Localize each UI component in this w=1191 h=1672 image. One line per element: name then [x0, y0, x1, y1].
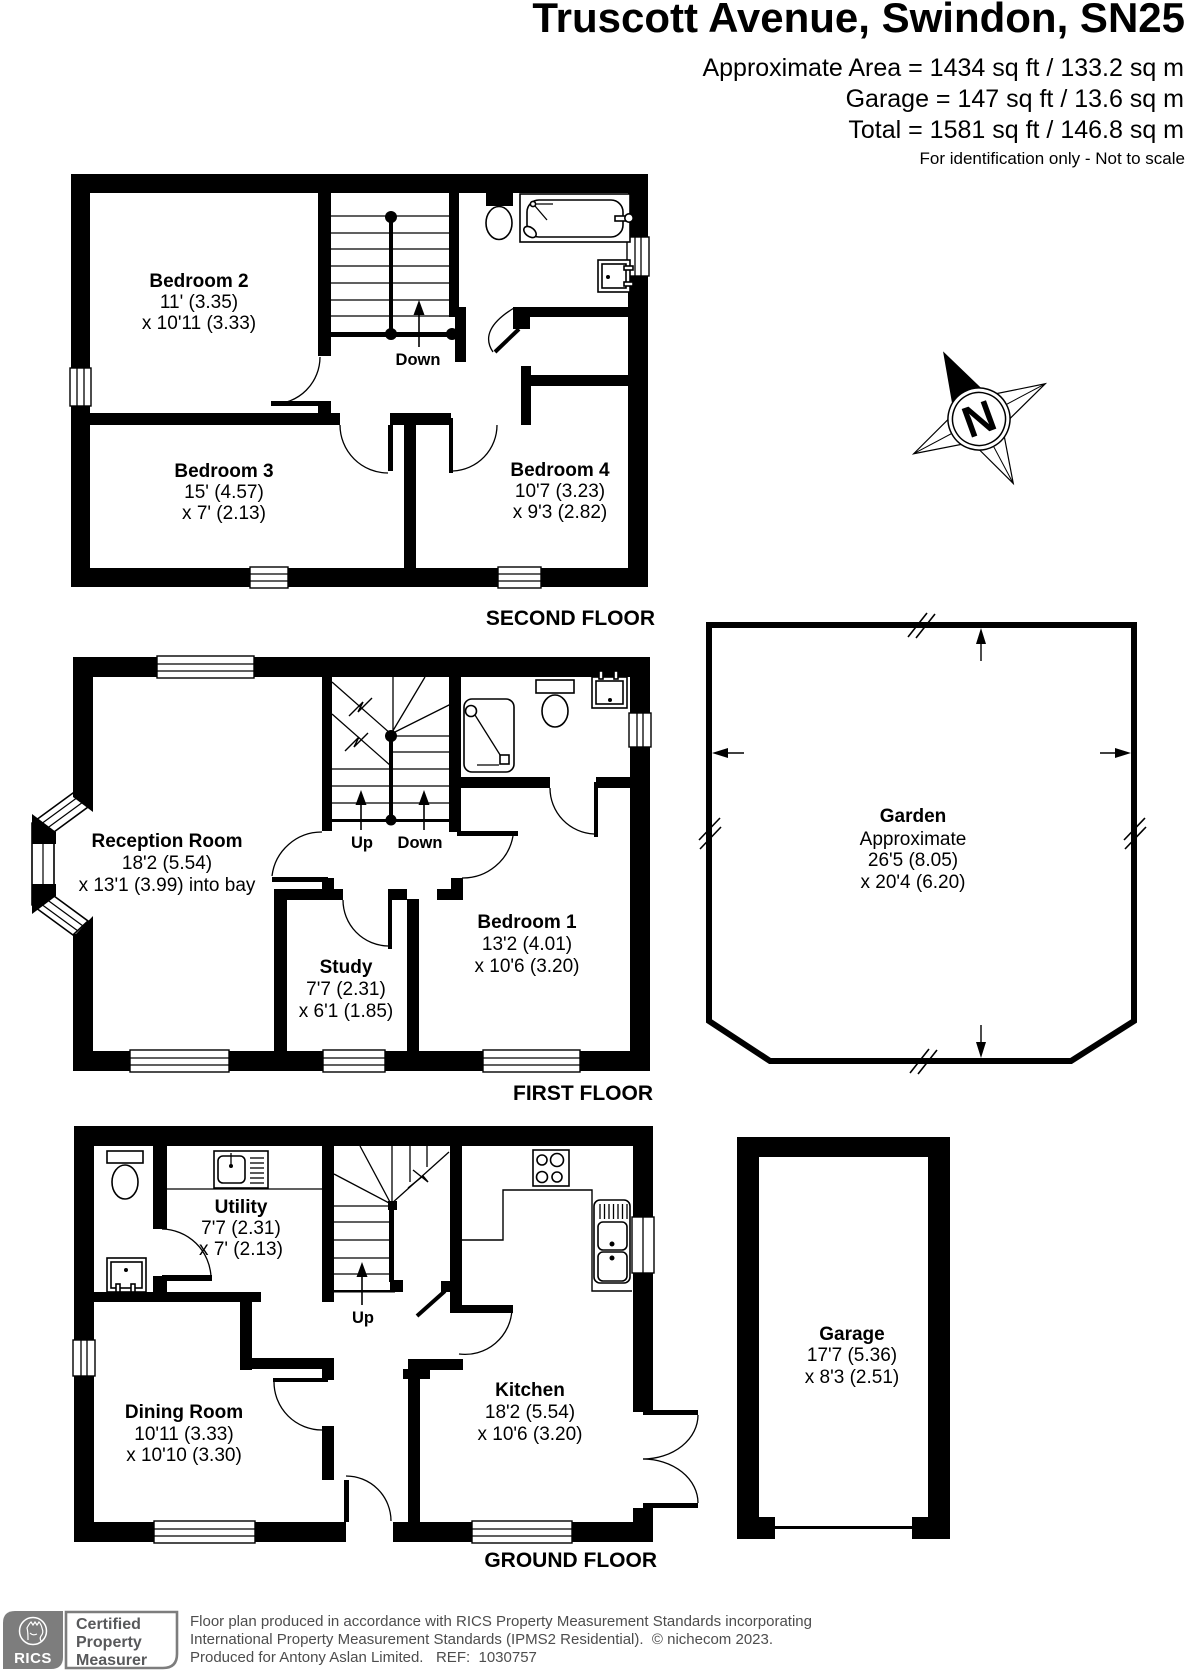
svg-text:11' (3.35): 11' (3.35) — [160, 292, 238, 313]
svg-text:x 20'4 (6.20): x 20'4 (6.20) — [860, 872, 965, 893]
svg-text:x 8'3 (2.51): x 8'3 (2.51) — [805, 1367, 899, 1388]
svg-text:For identification only - Not: For identification only - Not to scale — [919, 149, 1185, 168]
svg-text:RICS: RICS — [14, 1650, 52, 1667]
svg-text:Measurer: Measurer — [76, 1652, 147, 1669]
svg-text:Study: Study — [320, 957, 373, 978]
svg-text:Certified: Certified — [76, 1616, 141, 1633]
svg-text:17'7 (5.36): 17'7 (5.36) — [807, 1345, 897, 1366]
svg-text:Up: Up — [352, 1309, 374, 1327]
svg-text:Bedroom 3: Bedroom 3 — [174, 461, 273, 482]
svg-text:18'2 (5.54): 18'2 (5.54) — [485, 1402, 575, 1423]
svg-text:15' (4.57): 15' (4.57) — [184, 482, 264, 503]
svg-text:x 6'1 (1.85): x 6'1 (1.85) — [299, 1001, 393, 1022]
svg-text:10'7 (3.23): 10'7 (3.23) — [515, 481, 605, 502]
svg-text:7'7 (2.31): 7'7 (2.31) — [306, 979, 386, 1000]
svg-text:x 9'3 (2.82): x 9'3 (2.82) — [513, 502, 607, 523]
svg-text:Bedroom 2: Bedroom 2 — [149, 271, 248, 292]
svg-text:x 10'6 (3.20): x 10'6 (3.20) — [477, 1424, 582, 1445]
svg-text:Reception Room: Reception Room — [92, 831, 243, 852]
svg-text:x 13'1 (3.99) into bay: x 13'1 (3.99) into bay — [79, 875, 256, 896]
svg-text:International Property Measure: International Property Measurement Stand… — [190, 1631, 773, 1648]
svg-text:GROUND FLOOR: GROUND FLOOR — [484, 1549, 657, 1572]
svg-text:Utility: Utility — [215, 1197, 268, 1218]
svg-text:Up: Up — [351, 834, 373, 852]
svg-text:Approximate Area = 1434 sq ft: Approximate Area = 1434 sq ft / 133.2 sq… — [702, 54, 1184, 82]
svg-text:Produced for Antony Aslan Limi: Produced for Antony Aslan Limited. REF: … — [190, 1649, 537, 1666]
svg-text:Property: Property — [76, 1634, 142, 1651]
svg-text:SECOND FLOOR: SECOND FLOOR — [486, 607, 655, 630]
svg-text:18'2 (5.54): 18'2 (5.54) — [122, 853, 212, 874]
svg-text:Total = 1581 sq ft / 146.8 sq: Total = 1581 sq ft / 146.8 sq m — [848, 116, 1184, 144]
svg-text:Kitchen: Kitchen — [495, 1380, 565, 1401]
svg-text:Down: Down — [398, 834, 443, 852]
svg-text:Approximate: Approximate — [860, 829, 967, 850]
svg-text:Dining Room: Dining Room — [125, 1402, 243, 1423]
svg-text:Garage = 147 sq ft / 13.6 sq m: Garage = 147 sq ft / 13.6 sq m — [846, 85, 1184, 113]
svg-text:x 10'11 (3.33): x 10'11 (3.33) — [142, 313, 256, 334]
svg-text:FIRST FLOOR: FIRST FLOOR — [513, 1082, 653, 1105]
svg-text:x 7' (2.13): x 7' (2.13) — [182, 503, 266, 524]
svg-text:13'2 (4.01): 13'2 (4.01) — [482, 934, 572, 955]
svg-text:x 10'10 (3.30): x 10'10 (3.30) — [126, 1445, 242, 1466]
svg-text:Garden: Garden — [880, 806, 947, 827]
svg-text:Garage: Garage — [819, 1324, 884, 1345]
svg-text:Down: Down — [396, 351, 441, 369]
svg-text:Bedroom 4: Bedroom 4 — [510, 460, 610, 481]
svg-text:x 10'6 (3.20): x 10'6 (3.20) — [474, 956, 579, 977]
svg-text:Floor plan produced in accorda: Floor plan produced in accordance with R… — [190, 1613, 812, 1630]
svg-text:7'7 (2.31): 7'7 (2.31) — [201, 1218, 281, 1239]
svg-text:x 7' (2.13): x 7' (2.13) — [199, 1239, 283, 1260]
svg-text:10'11 (3.33): 10'11 (3.33) — [134, 1424, 233, 1445]
svg-text:Bedroom 1: Bedroom 1 — [477, 912, 577, 933]
svg-text:26'5 (8.05): 26'5 (8.05) — [868, 850, 958, 871]
svg-text:Truscott Avenue, Swindon, SN25: Truscott Avenue, Swindon, SN25 — [532, 0, 1185, 41]
